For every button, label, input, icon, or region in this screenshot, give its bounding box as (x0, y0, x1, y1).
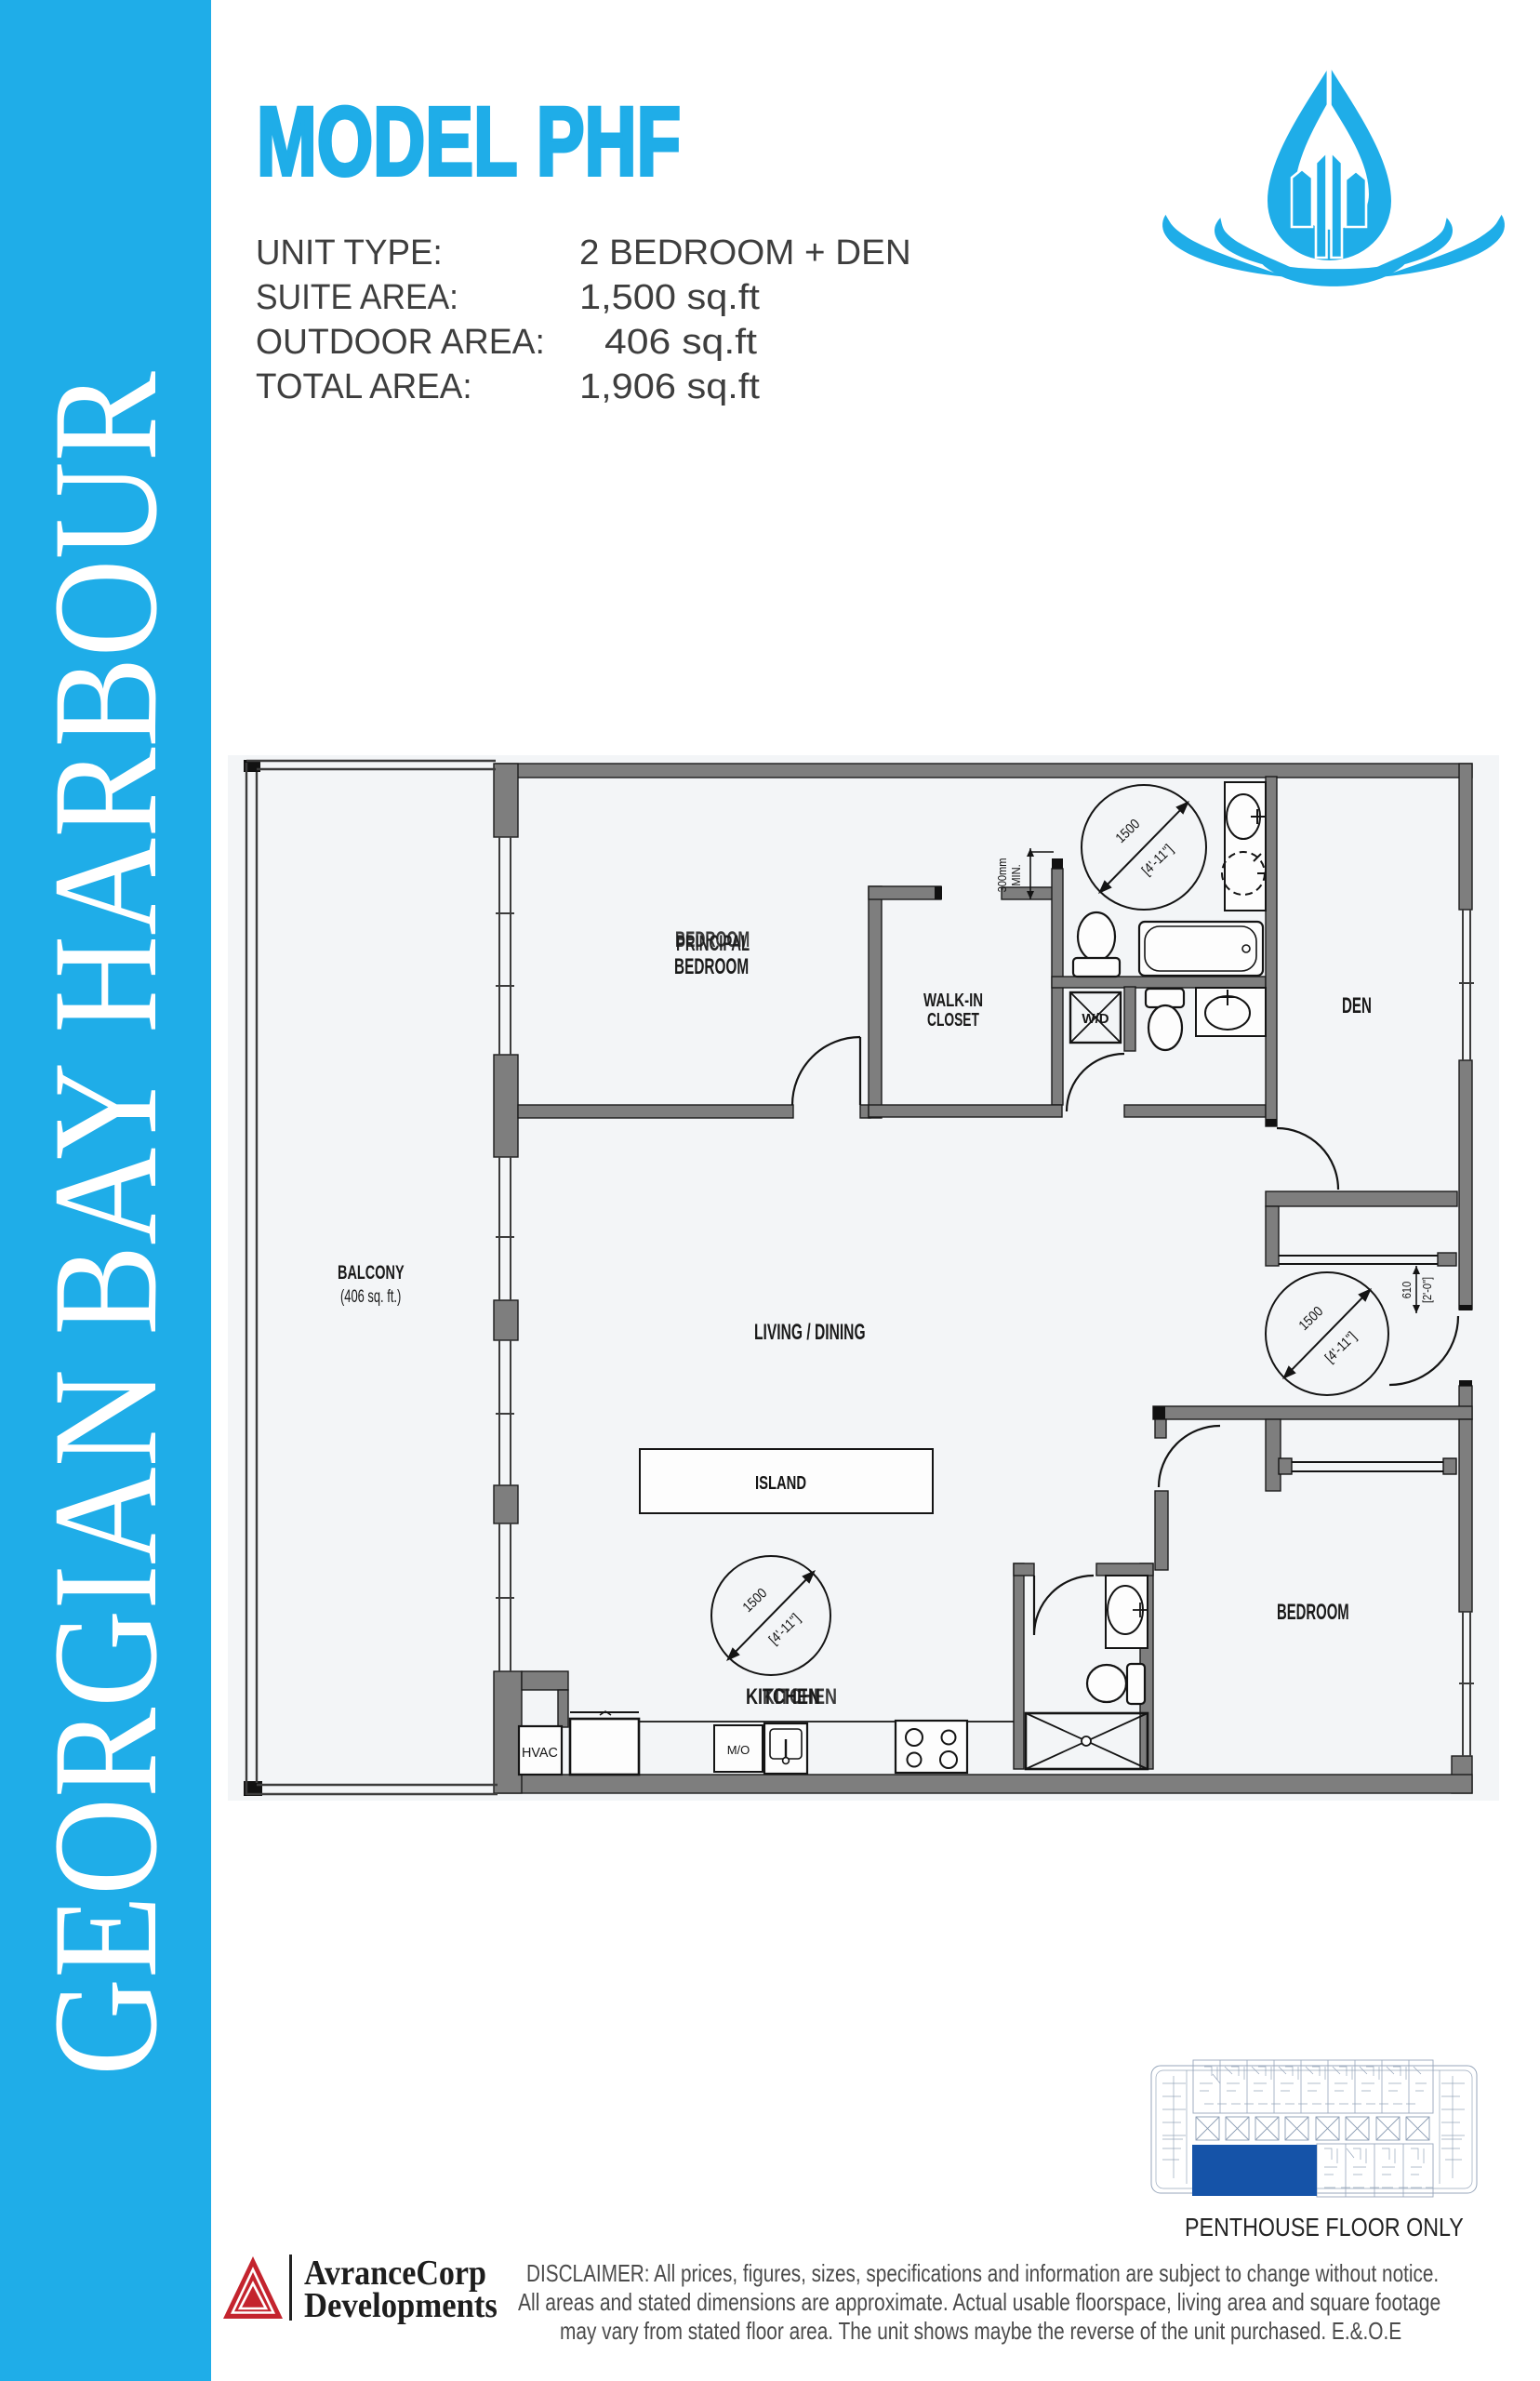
svg-text:BEDROOM: BEDROOM (675, 928, 750, 952)
svg-text:610: 610 (1400, 1282, 1414, 1299)
svg-text:WALK-IN: WALK-IN (923, 990, 983, 1011)
svg-text:All areas and stated dimension: All areas and stated dimensions are appr… (518, 2290, 1440, 2317)
svg-text:ISLAND: ISLAND (755, 1472, 806, 1494)
svg-text:SUITE AREA:: SUITE AREA: (256, 277, 458, 316)
svg-text:W/D: W/D (1082, 1011, 1109, 1027)
svg-text:Developments: Developments (304, 2286, 498, 2325)
svg-text:[2'-0"]: [2'-0"] (1420, 1277, 1434, 1303)
svg-text:CLOSET: CLOSET (927, 1008, 979, 1030)
svg-text:UNIT TYPE:: UNIT TYPE: (256, 232, 443, 272)
svg-text:BEDROOM: BEDROOM (674, 955, 749, 979)
svg-text:M/O: M/O (727, 1743, 750, 1757)
svg-text:PENTHOUSE FLOOR ONLY: PENTHOUSE FLOOR ONLY (1185, 2214, 1464, 2241)
svg-text:OUTDOOR AREA:: OUTDOOR AREA: (256, 322, 545, 361)
svg-text:1,906 sq.ft: 1,906 sq.ft (579, 367, 760, 406)
svg-text:GEORGIAN BAY HARBOUR: GEORGIAN BAY HARBOUR (22, 371, 188, 2076)
svg-text:1,500 sq.ft: 1,500 sq.ft (579, 278, 760, 317)
svg-text:406 sq.ft: 406 sq.ft (604, 321, 757, 361)
svg-text:HVAC: HVAC (522, 1746, 558, 1761)
svg-text:MODEL PHF: MODEL PHF (257, 86, 681, 196)
svg-text:LIVING / DINING: LIVING / DINING (754, 1321, 866, 1345)
svg-text:KITCHEN: KITCHEN (763, 1685, 837, 1709)
svg-text:DEN: DEN (1342, 994, 1372, 1018)
svg-text:BALCONY: BALCONY (338, 1261, 405, 1283)
svg-text:(406 sq. ft.): (406 sq. ft.) (340, 1287, 401, 1307)
svg-text:TOTAL AREA:: TOTAL AREA: (256, 366, 472, 406)
svg-text:may vary from stated floor are: may vary from stated floor area. The uni… (560, 2318, 1401, 2345)
svg-text:MIN.: MIN. (1009, 864, 1023, 885)
svg-text:2 BEDROOM + DEN: 2 BEDROOM + DEN (579, 233, 911, 273)
svg-text:DISCLAIMER: All prices, figure: DISCLAIMER: All prices, figures, sizes, … (526, 2260, 1439, 2287)
svg-text:300mm: 300mm (995, 858, 1009, 893)
svg-text:BEDROOM: BEDROOM (1277, 1601, 1349, 1625)
